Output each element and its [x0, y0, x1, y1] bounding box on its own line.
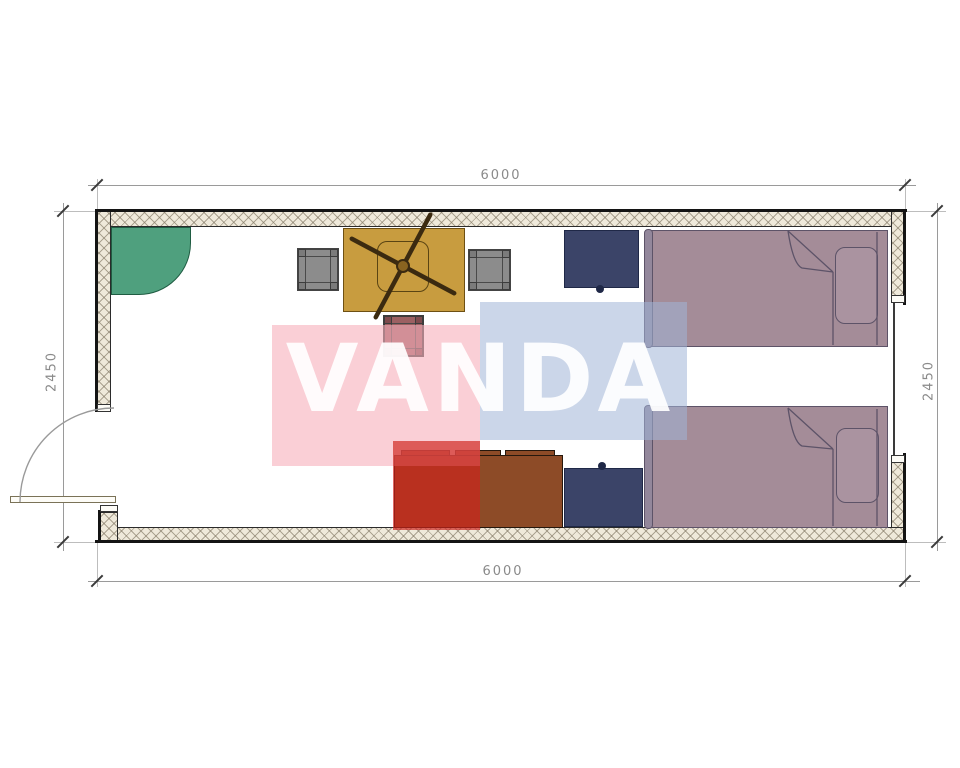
sideboard-handle — [505, 450, 555, 456]
wall-outline-right-lower — [903, 453, 906, 543]
door-swing-arc — [10, 400, 130, 520]
chair-post — [502, 282, 510, 290]
wall-outline-left — [95, 209, 98, 412]
watermark-text: VANDA — [268, 326, 692, 434]
chair-post — [330, 282, 338, 290]
extension-line-right-bottom — [905, 542, 946, 543]
floor-plan-canvas: 6000 6000 2450 2450 — [0, 0, 960, 768]
dimension-top-label: 6000 — [441, 168, 561, 183]
chair-post — [469, 282, 477, 290]
stool-post — [384, 316, 392, 324]
corner-unit — [111, 227, 191, 295]
wall-cap-window-bottom — [891, 455, 905, 463]
dimension-bottom-label: 6000 — [443, 564, 563, 579]
nightstand-bottom-knob — [598, 462, 606, 470]
chair-post — [502, 250, 510, 258]
wall-top — [97, 211, 905, 227]
wall-cap-window-top — [891, 295, 905, 303]
wall-outline-bottom — [95, 540, 907, 543]
wall-outline-right-upper — [903, 209, 906, 305]
dimension-left-label: 2450 — [45, 340, 60, 404]
wall-outline-top — [95, 209, 907, 212]
extension-line-right-top — [905, 211, 946, 212]
chair-left-seat — [305, 256, 331, 283]
nightstand-bottom — [564, 468, 643, 527]
wall-left — [97, 211, 111, 412]
dimension-line-bottom — [88, 581, 920, 582]
nightstand-top-knob — [596, 285, 604, 293]
dimension-right-label: 2450 — [922, 349, 937, 413]
watermark-red-block — [393, 441, 480, 530]
stool-post — [415, 316, 423, 324]
chair-right — [468, 249, 511, 291]
chair-right-seat — [476, 257, 503, 283]
chair-post — [298, 282, 306, 290]
chair-post — [469, 250, 477, 258]
window-line — [893, 303, 895, 455]
chair-post — [298, 249, 306, 257]
nightstand-top — [564, 230, 639, 288]
dimension-line-top — [88, 185, 916, 186]
dimension-line-right — [937, 203, 938, 551]
chair-left — [297, 248, 339, 291]
chair-post — [330, 249, 338, 257]
